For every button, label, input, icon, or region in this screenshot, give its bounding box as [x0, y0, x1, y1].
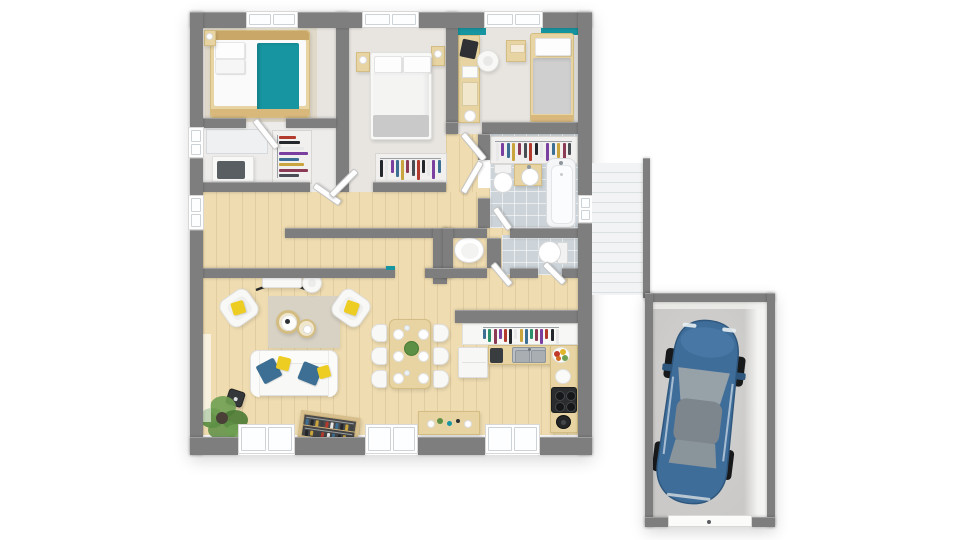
wall-top — [419, 12, 484, 28]
plant-pot — [216, 412, 228, 424]
bed2-gray-throw — [373, 115, 429, 137]
rail-item — [507, 143, 510, 158]
bed1-pillow — [215, 59, 245, 74]
rail-item — [535, 329, 538, 341]
window-bottom-3 — [485, 424, 540, 454]
vanity-sink — [514, 164, 542, 186]
desk-deco — [464, 110, 476, 122]
fridge-door-line — [462, 362, 486, 363]
bed2-pillow — [374, 56, 402, 73]
bed2-closet — [375, 153, 447, 184]
rail-item — [512, 143, 515, 161]
wall-bottom — [190, 437, 238, 455]
plate — [418, 351, 429, 362]
rail-item — [279, 169, 308, 172]
candle — [303, 325, 312, 334]
dressing-dresser-top — [217, 161, 245, 179]
burner — [566, 391, 576, 401]
rail-item — [406, 160, 409, 173]
faucet — [527, 165, 531, 169]
rail-item — [501, 143, 504, 156]
dining-chair — [433, 324, 449, 342]
fruit — [562, 355, 568, 361]
plate — [418, 329, 429, 340]
wc1-toilet-lid — [461, 243, 479, 259]
window-top-1 — [246, 11, 298, 28]
window-top-3 — [484, 11, 543, 28]
rail-item — [279, 163, 304, 166]
bed2-frame — [370, 52, 432, 140]
rail-item — [557, 143, 560, 158]
bed3-gray-duvet — [533, 58, 571, 114]
teal-wall-accent-tick — [386, 266, 395, 270]
basin — [521, 168, 539, 186]
rail-item — [551, 329, 554, 341]
desk-papers — [462, 66, 478, 78]
window-bottom-1 — [238, 424, 295, 454]
rail-item — [412, 160, 415, 176]
plate — [393, 329, 404, 340]
dining-chair — [371, 347, 387, 365]
wall-left — [190, 12, 203, 127]
rail-item — [483, 329, 486, 339]
centerpiece-plant — [404, 341, 419, 356]
rail-item — [391, 160, 394, 173]
wall-bottom — [540, 437, 592, 455]
rail-item — [520, 329, 523, 342]
dining-chair — [371, 324, 387, 342]
rail-item — [499, 329, 502, 339]
wall-bed2-hall — [373, 182, 446, 192]
kitchen-wall-shelf — [462, 323, 578, 345]
office-chair — [477, 50, 499, 72]
rail-item — [438, 160, 441, 173]
rail-item — [540, 329, 543, 344]
rail-item — [279, 152, 308, 155]
staircase — [592, 163, 643, 295]
sink-basin — [515, 350, 530, 363]
rail-item — [494, 329, 497, 344]
rail-item — [396, 160, 399, 177]
wall-bed1-bed2 — [336, 12, 349, 192]
wall-left — [190, 158, 203, 195]
rail-item — [422, 160, 425, 173]
window-left-1 — [188, 127, 204, 158]
bathtub-drain — [560, 173, 563, 176]
plate — [418, 373, 429, 384]
wall-stairwell-lower — [203, 268, 395, 278]
rail-item — [401, 160, 404, 180]
kettle — [556, 415, 571, 429]
wall-stairwell-upper — [285, 228, 433, 238]
car-roof — [672, 397, 723, 446]
rail-item — [518, 143, 521, 155]
nightstand-shelf — [510, 44, 525, 53]
rail-item — [335, 423, 339, 429]
wc2-toilet-bowl — [538, 241, 561, 264]
rail-item — [279, 147, 304, 150]
bathtub-faucet — [559, 161, 563, 165]
wall-bed2-bed3 — [446, 12, 458, 134]
rail-item — [380, 160, 383, 177]
sink-basin — [531, 350, 546, 363]
wall-bottom — [418, 437, 485, 455]
bed3-footboard — [531, 115, 573, 122]
wall-top — [298, 12, 362, 28]
rail-item — [279, 141, 300, 144]
shelf-jars — [481, 325, 561, 344]
bed1-teal-runner — [257, 43, 299, 115]
rail-item — [350, 425, 354, 431]
bed3-frame — [530, 33, 574, 123]
garage-wall-right — [767, 293, 775, 527]
wall-dressing-hall — [203, 182, 310, 192]
bed2-pillow — [403, 56, 431, 73]
garage-wall-top — [645, 293, 775, 302]
rail-item — [535, 143, 538, 155]
sideboard — [418, 411, 480, 435]
toilet — [492, 164, 512, 192]
wall-bottom — [295, 437, 365, 455]
rail-item — [279, 136, 296, 139]
rail-item — [279, 158, 299, 161]
rail-item — [545, 329, 548, 339]
rail-item — [310, 430, 314, 435]
bed3-pillow — [535, 38, 571, 56]
office-chair-seat — [483, 56, 493, 66]
wall-wc-lower — [510, 268, 538, 278]
bed2-clothes-rail — [378, 156, 443, 181]
wall-left — [190, 230, 203, 455]
sofa-pillow-yellow — [276, 356, 292, 372]
rail-item — [488, 329, 491, 342]
kettle-lid — [561, 420, 566, 425]
burner — [555, 391, 565, 401]
bed3-nightstand — [506, 40, 526, 62]
sideboard-deco — [456, 419, 460, 423]
rail-item — [525, 329, 528, 344]
wall-wc-lower — [562, 268, 578, 278]
garage-wall-bottom — [752, 517, 775, 527]
plate — [393, 373, 404, 384]
bed2-lamp-left — [359, 56, 367, 64]
sink-faucet — [528, 348, 531, 351]
rail-item — [432, 160, 435, 179]
garage-wall-left — [645, 293, 653, 527]
bed1-pillow — [215, 42, 245, 59]
window-top-2 — [362, 11, 419, 28]
kitchen-bowl — [555, 369, 571, 384]
garage-door — [668, 515, 752, 527]
dining-table — [389, 319, 431, 389]
rail-item — [320, 421, 324, 427]
garage-inner-wall-face — [653, 302, 767, 309]
wall-kitchen-shelf — [455, 310, 578, 323]
bed1-headboard — [211, 31, 309, 40]
window-left-2 — [188, 195, 204, 230]
bed2-lamp-right — [434, 50, 442, 58]
dressing-dresser — [212, 156, 254, 182]
rail-item — [568, 143, 571, 155]
sideboard-deco — [464, 420, 472, 428]
sofa — [250, 350, 338, 396]
rail-item — [385, 160, 388, 180]
toilet-bowl — [493, 172, 513, 193]
rail-item — [305, 419, 309, 425]
wall-wc-lower — [425, 268, 487, 278]
rail-item — [427, 160, 430, 176]
wc2-toilet — [538, 240, 568, 264]
sideboard-plant — [437, 418, 443, 424]
window-sill-strip — [203, 334, 211, 422]
wall-bed1-dressing — [286, 118, 336, 128]
garage-door-handle — [707, 520, 711, 524]
staircase-wall — [643, 158, 650, 298]
stool-seat — [308, 279, 316, 287]
wall-bed3-bath — [446, 122, 458, 134]
wall-bath-left — [478, 198, 490, 228]
wall-wc-upper — [510, 228, 578, 238]
dressing-clothes-rail — [275, 133, 308, 180]
laptop — [459, 39, 478, 60]
wall-bed1-dressing — [203, 118, 246, 128]
rail-item — [540, 143, 543, 158]
sideboard-vase — [447, 421, 452, 426]
wall-right — [578, 12, 592, 195]
wall-right — [578, 223, 592, 455]
dining-chair — [433, 347, 449, 365]
fridge — [458, 347, 488, 378]
rail-item — [556, 329, 559, 344]
bed1-frame — [210, 30, 310, 118]
desk-shelves — [462, 82, 478, 106]
rail-item — [529, 143, 532, 161]
rail-item — [524, 143, 527, 158]
burner — [566, 402, 576, 412]
bathtub — [546, 158, 576, 228]
rail-item — [504, 329, 507, 342]
window-bottom-2 — [365, 424, 418, 454]
glass — [404, 370, 410, 376]
kitchen-sink — [512, 347, 546, 363]
bed1-lamp — [206, 33, 213, 40]
burner — [555, 402, 565, 412]
dining-chair — [433, 370, 449, 388]
dining-chair — [371, 370, 387, 388]
rail-item — [552, 143, 555, 155]
fruit-bowl — [552, 347, 570, 363]
coffee-machine — [490, 348, 503, 363]
window-right — [578, 195, 593, 223]
dressing-mirror-cabinet — [206, 129, 268, 154]
rail-item — [509, 329, 512, 344]
sideboard-deco — [427, 420, 435, 428]
garage-wall-bottom — [645, 517, 668, 527]
fruit — [556, 356, 561, 361]
table-deco — [285, 319, 290, 324]
cooktop — [551, 387, 577, 413]
bed1-footboard — [211, 109, 309, 117]
bed3-desk — [458, 35, 480, 123]
rail-item — [530, 329, 533, 339]
rail-item — [514, 329, 517, 339]
floor-plan-canvas — [0, 0, 960, 540]
rail-item — [417, 160, 420, 180]
plate — [393, 351, 404, 362]
dressing-wardrobe — [272, 130, 312, 184]
wall-bed3-bath — [482, 122, 578, 134]
rail-item — [279, 174, 299, 177]
glass — [404, 325, 410, 331]
coffee-table-2 — [297, 319, 316, 338]
wc1-toilet — [454, 237, 484, 263]
rail-item — [496, 143, 499, 161]
rail-item — [546, 143, 549, 161]
